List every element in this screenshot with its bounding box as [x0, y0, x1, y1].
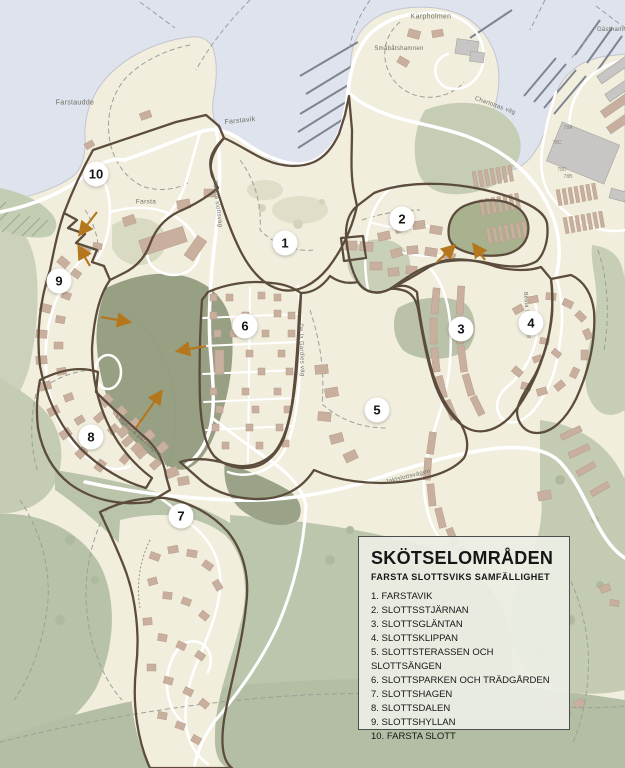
building-number-78b: 78B [564, 174, 573, 180]
map-stage: Farstaudde Farstavik Karpholmen Småbåtsh… [0, 0, 625, 768]
area-marker-4-label: 4 [527, 316, 534, 331]
label-karpholmen: Karpholmen [411, 14, 452, 21]
area-marker-6: 6 [233, 314, 258, 339]
area-marker-7-label: 7 [177, 509, 184, 524]
building-number-78d: 78D [557, 167, 566, 173]
legend-panel: SKÖTSELOMRÅDEN FARSTA SLOTTSVIKS SAMFÄLL… [358, 536, 570, 730]
area-marker-5: 5 [365, 398, 390, 423]
area-marker-3: 3 [449, 317, 474, 342]
label-gasthamn: Gästhamn [597, 27, 625, 33]
area-marker-6-label: 6 [241, 319, 248, 334]
area-marker-4: 4 [519, 311, 544, 336]
legend-item-9: 9. SLOTTSHYLLAN [371, 716, 557, 730]
legend-item-6: 6. SLOTTSPARKEN OCH TRÄDGÅRDEN [371, 674, 557, 688]
legend-item-7: 7. SLOTTSHAGEN [371, 688, 557, 702]
area-marker-10-label: 10 [89, 167, 103, 182]
legend-item-10: 10. FARSTA SLOTT [371, 730, 557, 744]
label-smabatshamnen: Småbåtshamnen [374, 46, 423, 52]
legend-item-4: 4. SLOTTSKLIPPAN [371, 632, 557, 646]
area-marker-9-label: 9 [55, 274, 62, 289]
legend-item-2: 2. SLOTTSSTJÄRNAN [371, 604, 557, 618]
area-marker-7: 7 [169, 504, 194, 529]
area-marker-8-label: 8 [87, 430, 94, 445]
area-marker-3-label: 3 [457, 322, 464, 337]
legend-item-1: 1. FARSTAVIK [371, 590, 557, 604]
building-number-78a: 78A [564, 125, 573, 131]
legend-item-5: 5. SLOTTSTERASSEN OCH SLOTTSÄNGEN [371, 646, 557, 674]
legend-item-3: 3. SLOTTSGLÄNTAN [371, 618, 557, 632]
legend-subtitle: FARSTA SLOTTSVIKS SAMFÄLLIGHET [371, 572, 557, 582]
area-marker-1: 1 [273, 231, 298, 256]
area-marker-1-label: 1 [281, 236, 288, 251]
label-farstaudde: Farstaudde [56, 100, 94, 107]
label-farsta: Farsta [136, 199, 156, 206]
area-marker-5-label: 5 [373, 403, 380, 418]
legend-item-list: 1. FARSTAVIK 2. SLOTTSSTJÄRNAN 3. SLOTTS… [371, 590, 557, 743]
area-marker-9: 9 [47, 269, 72, 294]
legend-title: SKÖTSELOMRÅDEN [371, 548, 557, 569]
area-marker-8: 8 [79, 425, 104, 450]
area-marker-2: 2 [390, 207, 415, 232]
legend-item-8: 8. SLOTTSDALEN [371, 702, 557, 716]
building-number-78c: 78C [552, 140, 561, 146]
area-marker-10: 10 [84, 162, 109, 187]
area-marker-2-label: 2 [398, 212, 405, 227]
